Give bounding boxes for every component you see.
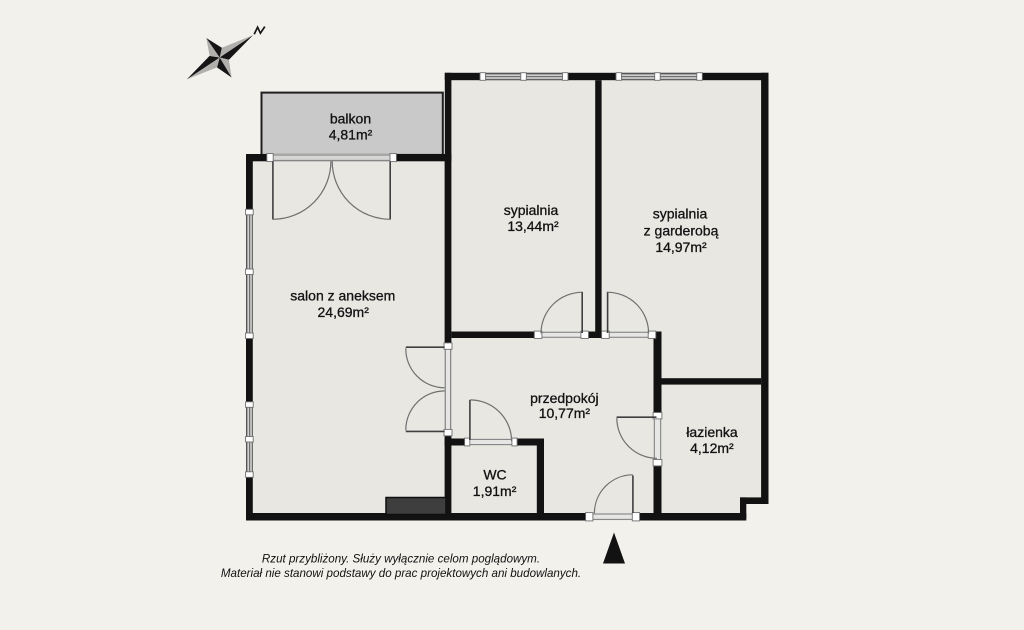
- svg-text:przedpokój: przedpokój: [530, 390, 599, 406]
- svg-text:1,91m²: 1,91m²: [473, 483, 517, 499]
- svg-text:24,69m²: 24,69m²: [318, 304, 370, 320]
- svg-text:łazienka: łazienka: [686, 424, 738, 440]
- svg-text:10,77m²: 10,77m²: [539, 405, 591, 421]
- svg-text:14,97m²: 14,97m²: [655, 239, 707, 255]
- svg-text:WC: WC: [483, 467, 506, 483]
- svg-text:Materiał nie stanowi podstawy: Materiał nie stanowi podstawy do prac pr…: [221, 567, 581, 580]
- svg-text:4,12m²: 4,12m²: [690, 440, 734, 456]
- svg-text:sypialnia: sypialnia: [504, 202, 559, 218]
- svg-text:4,81m²: 4,81m²: [329, 127, 373, 143]
- svg-text:13,44m²: 13,44m²: [507, 218, 559, 234]
- svg-text:z garderobą: z garderobą: [644, 222, 719, 238]
- svg-text:Rzut przybliżony. Służy wyłącz: Rzut przybliżony. Służy wyłącznie celom …: [262, 553, 540, 566]
- svg-text:sypialnia: sypialnia: [653, 206, 708, 222]
- svg-text:balkon: balkon: [330, 110, 371, 126]
- svg-text:salon z aneksem: salon z aneksem: [290, 288, 395, 304]
